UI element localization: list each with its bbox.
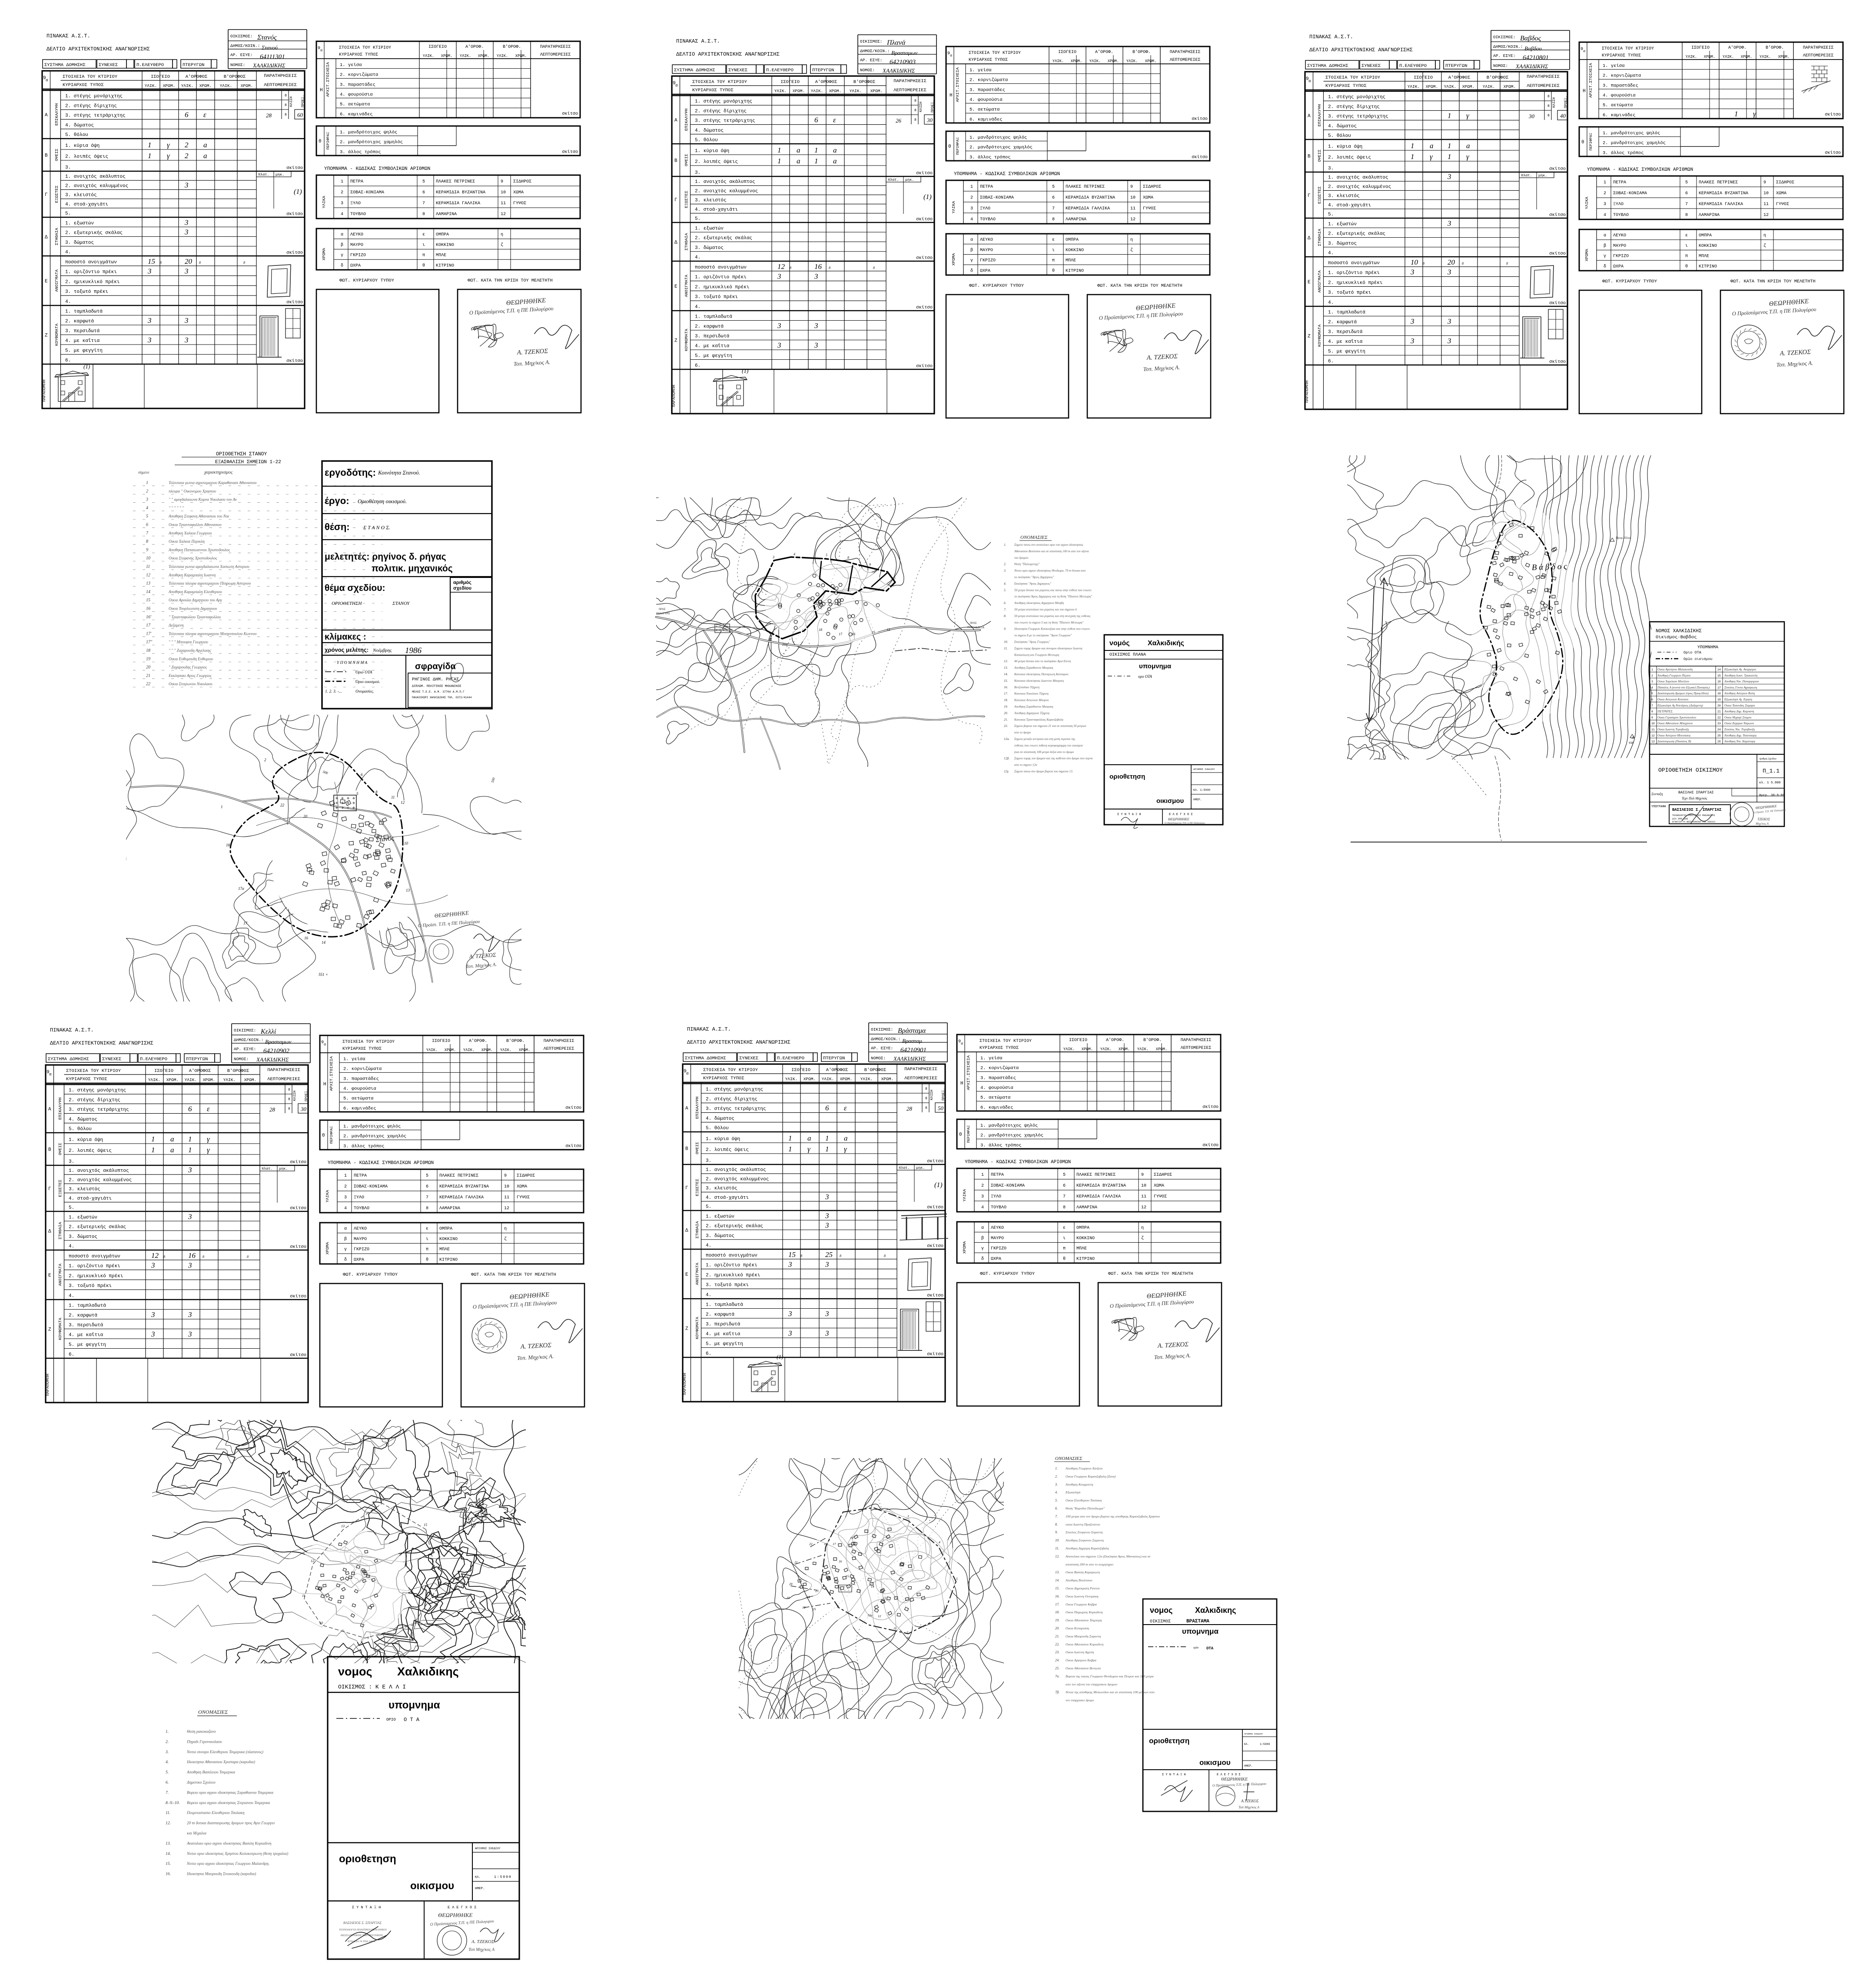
svg-text:ΚΕΡΑΜΙΔΙΑ ΒΥΖΑΝΤΙΝΑ: ΚΕΡΑΜΙΔΙΑ ΒΥΖΑΝΤΙΝΑ: [1066, 196, 1115, 200]
svg-text:Ζ: Ζ: [45, 333, 48, 338]
svg-text:5: 5: [956, 1577, 958, 1581]
svg-text:22: 22: [1717, 716, 1721, 719]
svg-text:σκίτσο: σκίτσο: [562, 111, 578, 116]
svg-text:500: 500: [490, 777, 496, 783]
svg-text:1. μανδρότοιχος ψηλός: 1. μανδρότοιχος ψηλός: [343, 1124, 401, 1129]
svg-text:Αποθηκη Νικ. Καμπουρη: Αποθηκη Νικ. Καμπουρη: [1724, 740, 1755, 743]
svg-text:5.: 5.: [166, 1771, 169, 1775]
svg-text:σκίτσο: σκίτσο: [927, 1293, 943, 1298]
svg-text:19.: 19.: [1055, 1618, 1059, 1622]
svg-text:Α'ΟΡΟΦ.: Α'ΟΡΟΦ.: [469, 1038, 487, 1044]
svg-text:5: 5: [356, 792, 359, 796]
svg-text:a: a: [1466, 142, 1470, 150]
svg-text:Κατοικια ιδιοκτησιας Ιωαννου Μ: Κατοικια ιδιοκτησιας Ιωαννου Μαυρικη: [1014, 679, 1064, 683]
svg-text:15: 15: [846, 1574, 849, 1578]
svg-text:υπομνημα: υπομνημα: [1139, 663, 1172, 670]
svg-text:Βρασταμων: Βρασταμων: [891, 50, 918, 56]
svg-text:γ: γ: [207, 1146, 210, 1154]
svg-text:ΠΕΤΡΑ: ΠΕΤΡΑ: [350, 179, 363, 184]
svg-text:θ: θ: [422, 263, 425, 268]
svg-text:7: 7: [906, 1631, 908, 1635]
svg-text:θ: θ: [319, 139, 322, 144]
svg-text:3: 3: [184, 218, 189, 226]
svg-text:Οριο ΟΤΑ: Οριο ΟΤΑ: [1683, 650, 1702, 655]
svg-text:ΠΑΡΑΤΗΡΗΣΕΙΣ: ΠΑΡΑΤΗΡΗΣΕΙΣ: [1803, 45, 1834, 50]
svg-text:ΧΡΩΜ.: ΧΡΩΜ.: [793, 89, 805, 93]
svg-text:Κουκαλιωτη και Γεωργιου Μετεωρ: Κουκαλιωτη και Γεωργιου Μετεωρη: [1014, 653, 1059, 657]
svg-text:μηκ.: μηκ.: [916, 1166, 925, 1170]
svg-text:ΚΙΤΡΙΝΟ: ΚΙΤΡΙΝΟ: [436, 263, 454, 268]
svg-text:Στανού: Στανού: [261, 44, 278, 51]
svg-text:ΥΛΙΚ.: ΥΛΙΚ.: [1760, 55, 1771, 59]
svg-text:6. καμινάδες: 6. καμινάδες: [343, 1106, 376, 1111]
svg-text:Οικια Γεωργιου Καρατζοβαλη (Ζα: Οικια Γεωργιου Καρατζοβαλη (Ζατα): [1066, 1474, 1116, 1478]
svg-text:τον επαρχιακο δρομο: τον επαρχιακο δρομο: [1066, 1698, 1094, 1702]
svg-text:ΣΤΗΘΑΙΑ: ΣΤΗΘΑΙΑ: [684, 233, 689, 250]
svg-text:13: 13: [341, 1524, 345, 1528]
svg-text:Γ: Γ: [48, 1187, 51, 1192]
svg-text:νομος: νομος: [1150, 1606, 1172, 1615]
svg-text:ΦΩΤ. ΚΥΡΙΑΡΧΟΥ ΤΥΠΟΥ: ΦΩΤ. ΚΥΡΙΑΡΧΟΥ ΤΥΠΟΥ: [1602, 279, 1657, 284]
svg-text:4: 4: [341, 212, 343, 217]
svg-text:1. κύρια όψη: 1. κύρια όψη: [1328, 144, 1362, 149]
svg-text:12γ: 12γ: [834, 602, 840, 606]
svg-text:ΥΠΟΓΡΑΦΗ: ΥΠΟΓΡΑΦΗ: [1651, 805, 1666, 809]
svg-text:25.: 25.: [1055, 1666, 1059, 1670]
svg-text:ΠΑΡΑΠΟΜΠΗ: ΠΑΡΑΠΟΜΠΗ: [1305, 381, 1309, 403]
svg-text:ΣΤΑΝΟΥ: ΣΤΑΝΟΥ: [392, 601, 410, 606]
svg-text:ΧΑΛΚΙΔΙΚΗΣ: ΧΑΛΚΙΔΙΚΗΣ: [256, 1056, 289, 1063]
svg-text:Πηγαδι Γερονικολαου: Πηγαδι Γερονικολαου: [186, 1740, 222, 1744]
svg-text:2: 2: [264, 758, 266, 762]
svg-text:ΑΡΙΟΜΟΣ ΣΧΕΔΙΟΥ: ΑΡΙΟΜΟΣ ΣΧΕΔΙΟΥ: [475, 1847, 501, 1850]
svg-text:ΠΙΝΑΚΑΣ Α.Σ.Τ.: ΠΙΝΑΚΑΣ Α.Σ.Τ.: [46, 33, 90, 39]
svg-text:Νοτιο οριο ιδιοκτησιας Χρηστου: Νοτιο οριο ιδιοκτησιας Χρηστου Κολοκοτρω…: [186, 1851, 288, 1856]
svg-text:5. με φεγγίτη: 5. με φεγγίτη: [65, 348, 103, 354]
svg-text:7: 7: [146, 531, 149, 536]
svg-text:Οικια Τουρλιωτατη Δημητριου: Οικια Τουρλιωτατη Δημητριου: [169, 607, 217, 611]
svg-text:4. με καΐτια: 4. με καΐτια: [706, 1331, 740, 1337]
svg-text:16: 16: [1717, 680, 1721, 683]
svg-text:απο τον αξονα του επαρχιακου δ: απο τον αξονα του επαρχιακου δρομου: [1066, 1682, 1117, 1686]
svg-text:ΛΕΠΤΟΜΕΡΕΙΕΣ: ΛΕΠΤΟΜΕΡΕΙΕΣ: [893, 88, 926, 93]
svg-text:Ο Προϊσταμενος Τ.Π. η ΠΕ Πολυγ: Ο Προϊσταμενος Τ.Π. η ΠΕ Πολυγυρου: [1165, 822, 1205, 825]
svg-text:3. περσιδωτά: 3. περσιδωτά: [706, 1322, 740, 1327]
svg-text:Τοπ. Μηχ/κος Α.: Τοπ. Μηχ/κος Α.: [1143, 364, 1180, 372]
svg-text:4. με καΐτια: 4. με καΐτια: [65, 338, 100, 344]
svg-text:ΦΩΤ. ΚΑΤΑ ΤΗΝ ΚΡΙΣΗ ΤΟΥ ΜΕΛΕ: ΦΩΤ. ΚΑΤΑ ΤΗΝ ΚΡΙΣΗ ΤΟΥ ΜΕΛΕΤΗΤΗ: [471, 1273, 556, 1277]
svg-text:Αποθηκη Ιωαν. Τρακατελη: Αποθηκη Ιωαν. Τρακατελη: [1724, 674, 1757, 677]
svg-text:ΘΕΩΡΗΘΗΚΕ: ΘΕΩΡΗΘΗΚΕ: [1755, 804, 1777, 810]
svg-text:σκίτσο: σκίτσο: [916, 217, 933, 222]
svg-text:1: 1: [1448, 142, 1451, 150]
svg-text:ΔΕΛΤΙΟ ΑΡΧΙΤΕΚΤΟΝΙΚΗΣ ΑΝΑΓΝΩ: ΔΕΛΤΙΟ ΑΡΧΙΤΕΚΤΟΝΙΚΗΣ ΑΝΑΓΝΩΡΙΣΗΣ: [687, 1039, 790, 1045]
svg-text:γ: γ: [1604, 254, 1606, 259]
svg-text:ΣΥΣΤΗΜΑ ΔΟΜΗΣΗΣ: ΣΥΣΤΗΜΑ ΔΟΜΗΣΗΣ: [1307, 63, 1348, 69]
svg-text:4. δώματος: 4. δώματος: [69, 1117, 97, 1122]
svg-text:ΥΛΙΚ.: ΥΛΙΚ.: [1137, 1047, 1149, 1051]
svg-text:5. αετώματα: 5. αετώματα: [1603, 103, 1633, 108]
svg-text:9: 9: [1130, 185, 1133, 189]
svg-text:Χαλκιδικής: Χαλκιδικής: [1148, 640, 1184, 647]
svg-text:Δ: Δ: [1308, 236, 1311, 241]
svg-text:2. ανοιχτός καλυμμένος: 2. ανοιχτός καλυμμένος: [69, 1177, 132, 1183]
svg-text:3. τοξωτό πρέκι: 3. τοξωτό πρέκι: [69, 1284, 112, 1289]
svg-text:5. θόλου: 5. θόλου: [695, 138, 718, 143]
svg-text:σκίτσο: σκίτσο: [286, 300, 303, 305]
svg-text:8: 8: [243, 261, 245, 265]
svg-text:19: 19: [146, 657, 150, 661]
svg-text:3: 3: [1604, 202, 1606, 207]
svg-text:σκίτσο: σκίτσο: [927, 1159, 943, 1164]
svg-text:Γ: Γ: [685, 1186, 688, 1191]
svg-text:3. κλειστός: 3. κλειστός: [65, 193, 97, 198]
svg-text:Β: Β: [1308, 154, 1311, 159]
svg-text:ποσοστό ανοιγμάτων: ποσοστό ανοιγμάτων: [69, 1254, 120, 1259]
svg-text:ΝΟΜΟΣ:: ΝΟΜΟΣ:: [860, 68, 875, 73]
svg-text:Σημειο τομης δρομου και συνορο: Σημειο τομης δρομου και συνορου ιδιοκτησ…: [1014, 647, 1082, 650]
svg-text:ΠΤΕΡΥΓΩΝ: ΠΤΕΡΥΓΩΝ: [812, 68, 834, 73]
svg-text:5: 5: [826, 553, 827, 557]
svg-text:ΠΑΡΑΠΟΜΠΗ: ΠΑΡΑΠΟΜΠΗ: [42, 380, 46, 402]
svg-text:64210903: 64210903: [890, 59, 916, 66]
svg-text:3: 3: [814, 272, 818, 281]
svg-text:ΧΩΜΑ: ΧΩΜΑ: [517, 1184, 527, 1189]
svg-text:13.: 13.: [166, 1841, 171, 1846]
svg-text:" " " " " ": " " " " " ": [169, 506, 184, 511]
svg-text:5: 5: [146, 514, 148, 519]
svg-text:ε: ε: [1685, 233, 1688, 238]
svg-text:ΙΣΟΓΕΙΟ: ΙΣΟΓΕΙΟ: [151, 74, 170, 80]
svg-text:δ: δ: [970, 268, 973, 273]
svg-text:50 μετρα δυτικα του ρεματος κα: 50 μετρα δυτικα του ρεματος και πανω στη…: [1014, 588, 1092, 592]
svg-text:Η: Η: [950, 93, 953, 98]
svg-text:Προφ. Ηλιας: Προφ. Ηλιας: [1615, 536, 1631, 540]
svg-text:Οικια Αγαπητου Μαλακουδη: Οικια Αγαπητου Μαλακουδη: [1657, 668, 1693, 671]
svg-text:ΚΛ. 1:5000: ΚΛ. 1:5000: [1193, 789, 1210, 792]
svg-text:3: 3: [777, 341, 781, 349]
svg-text:αποσταση 200 m απο το κοιμητηρ: αποσταση 200 m απο το κοιμητηριο: [1066, 1562, 1113, 1566]
svg-text:Α. ΤΖΕΚΟΣ: Α. ΤΖΕΚΟΣ: [1157, 1341, 1189, 1350]
svg-text:2. ημικυκλικό πρέκι: 2. ημικυκλικό πρέκι: [695, 285, 749, 290]
svg-text:Β'ΟΡΟΦΟΣ: Β'ΟΡΟΦΟΣ: [224, 74, 246, 80]
svg-text:1: 1: [777, 146, 781, 154]
svg-text:εργοδότης:: εργοδότης:: [325, 467, 376, 478]
svg-text:8: 8: [1685, 213, 1688, 218]
svg-text:16: 16: [304, 936, 309, 940]
svg-text:η: η: [1130, 238, 1133, 242]
svg-text:α: α: [320, 48, 322, 53]
svg-text:1: 1: [1411, 142, 1414, 150]
svg-text:1: 1: [825, 1134, 829, 1142]
svg-text:12γ.: 12γ.: [1004, 769, 1009, 773]
svg-text:ΔΕΛΤΙΟ ΑΡΧΙΤΕΚΤΟΝΙΚΗΣ ΑΝΑΓΝΩ: ΔΕΛΤΙΟ ΑΡΧΙΤΕΚΤΟΝΙΚΗΣ ΑΝΑΓΝΩΡΙΣΗΣ: [50, 1040, 153, 1046]
svg-text:2. μανδρότοιχος χαμηλός: 2. μανδρότοιχος χαμηλός: [1603, 141, 1666, 146]
svg-text:ζ: ζ: [1763, 243, 1766, 249]
svg-text:ΥΛΙΚ.: ΥΛΙΚ.: [497, 54, 508, 58]
svg-text:Α'ΟΡΟΦ.: Α'ΟΡΟΦ.: [465, 44, 484, 50]
svg-text:2. εξωτερικής σκάλας: 2. εξωτερικής σκάλας: [706, 1224, 763, 1229]
svg-text:Σ Υ Ν Τ Α Ξ Η: Σ Υ Ν Τ Α Ξ Η: [1117, 813, 1141, 816]
svg-text:Οικια Αντωνιου Κουτσου: Οικια Αντωνιου Κουτσου: [1657, 698, 1689, 701]
svg-text:ΛΕΠΤΟΜΕΡΕΙΕΣ: ΛΕΠΤΟΜΕΡΕΙΕΣ: [540, 52, 571, 57]
svg-text:17: 17: [839, 632, 843, 636]
svg-text:ΥΛΙΚ.: ΥΛΙΚ.: [426, 1048, 438, 1052]
svg-text:1. οριζόντιο πρέκι: 1. οριζόντιο πρέκι: [69, 1264, 120, 1269]
svg-text:1.: 1.: [1004, 543, 1006, 547]
svg-text:20: 20: [185, 257, 193, 265]
svg-text:ΥΛΙΚ.: ΥΛΙΚ.: [1408, 84, 1420, 89]
svg-text:6.: 6.: [1328, 359, 1334, 364]
svg-text:ΑΡΙΘΜΟΣ ΣΧΕΔΙΟΥ: ΑΡΙΘΜΟΣ ΣΧΕΔΙΟΥ: [1193, 768, 1215, 771]
svg-text:ΠΑΡΑΤΗΡΗΣΕΙΣ: ΠΑΡΑΤΗΡΗΣΕΙΣ: [1170, 50, 1201, 54]
svg-text:3. περσιδωτά: 3. περσιδωτά: [695, 334, 730, 339]
svg-text:3: 3: [970, 206, 973, 211]
svg-text:ΥΛΙΚ.: ΥΛΙΚ.: [185, 1078, 197, 1082]
svg-text:6.: 6.: [1004, 601, 1006, 605]
svg-text:ΕΞΩΣΤΕΣ: ΕΞΩΣΤΕΣ: [1317, 186, 1322, 204]
svg-text:ΙΣΟΓΕΙΟ: ΙΣΟΓΕΙΟ: [1691, 46, 1710, 50]
svg-text:3: 3: [825, 1310, 829, 1318]
svg-text:ΜΠΛΕ: ΜΠΛΕ: [1066, 259, 1076, 263]
svg-text:σκίτσο: σκίτσο: [565, 1105, 581, 1111]
svg-text:κλ. 1 5.000: κλ. 1 5.000: [1759, 781, 1781, 785]
svg-text:β: β: [344, 1237, 347, 1242]
svg-text:8: 8: [1462, 262, 1464, 265]
svg-text:3. στέγης τετράριχτης: 3. στέγης τετράριχτης: [1328, 114, 1388, 119]
svg-text:8.: 8.: [1004, 614, 1006, 618]
svg-text:ΩΧΡΑ: ΩΧΡΑ: [1613, 264, 1624, 269]
svg-text:ΥΠΟΜΝΗΜΑ: ΥΠΟΜΝΗΜΑ: [1697, 645, 1718, 650]
svg-text:ΑΡΧΙΤ.ΣΤΟΙΧΕΙΑ: ΑΡΧΙΤ.ΣΤΟΙΧΕΙΑ: [325, 62, 330, 97]
svg-text:ΥΛΙΚ.: ΥΛΙΚ.: [1100, 1047, 1112, 1051]
svg-text:ΚΕΡΑΜΙΔΙΑ ΓΑΛΛΙΚΑ: ΚΕΡΑΜΙΔΙΑ ΓΑΛΛΙΚΑ: [436, 201, 480, 206]
svg-text:17: 17: [833, 1542, 836, 1546]
svg-text:11: 11: [1763, 202, 1769, 207]
svg-text:6: 6: [361, 773, 363, 777]
svg-text:δ: δ: [1604, 264, 1606, 269]
svg-text:Εξωκκλησι: Εξωκκλησι: [1065, 1490, 1080, 1494]
svg-text:8: 8: [1423, 262, 1424, 265]
svg-text:ΕΠΙΚΑΛΥΨΗ: ΕΠΙΚΑΛΥΨΗ: [695, 1097, 700, 1119]
svg-text:12: 12: [311, 1559, 314, 1563]
svg-text:ΧΡΩΜ.: ΧΡΩΜ.: [829, 89, 842, 93]
svg-text:ΑΡ. ΕΣΥΕ:: ΑΡ. ΕΣΥΕ:: [234, 1047, 256, 1051]
svg-text:7: 7: [1063, 1194, 1066, 1199]
svg-text:1. γείσα: 1. γείσα: [980, 1056, 1002, 1061]
svg-text:ΦΩΤ. ΚΑΤΑ ΤΗΝ ΚΡΙΣΗ ΤΟΥ ΜΕΛΕ: ΦΩΤ. ΚΑΤΑ ΤΗΝ ΚΡΙΣΗ ΤΟΥ ΜΕΛΕΤΗΤΗ: [1108, 1272, 1193, 1277]
svg-text:Β: Β: [45, 153, 48, 159]
svg-text:a: a: [844, 1134, 848, 1142]
svg-text:4.: 4.: [166, 1760, 169, 1764]
svg-text:2. κορνιζώματα: 2. κορνιζώματα: [970, 78, 1008, 83]
svg-text:3. περσιδωτά: 3. περσιδωτά: [69, 1323, 103, 1328]
svg-text:3: 3: [825, 1260, 829, 1269]
svg-text:ΚΙΤΡΙΝΟ: ΚΙΤΡΙΝΟ: [1699, 264, 1717, 269]
svg-text:2. ημικυκλικό πρέκι: 2. ημικυκλικό πρέκι: [65, 279, 120, 285]
svg-text:Εκκλησακι Αγιος Γεωργιος: Εκκλησακι Αγιος Γεωργιος: [168, 674, 212, 678]
svg-text:2. λοιπές όψεις: 2. λοιπές όψεις: [706, 1148, 749, 1153]
svg-text:Ο Προϊστ. Τ.Π. ΠΕ Πολυγυρου: Ο Προϊστ. Τ.Π. ΠΕ Πολυγυρου: [1754, 809, 1786, 814]
svg-text:2. λοιπές όψεις: 2. λοιπές όψεις: [69, 1148, 112, 1154]
svg-text:σκίτσο: σκίτσο: [1549, 212, 1566, 218]
svg-text:2. καρφωτά: 2. καρφωτά: [65, 319, 94, 324]
svg-text:Α. ΤΖΕΚΟΣ: Α. ΤΖΕΚΟΣ: [1779, 348, 1811, 357]
svg-text:1. στέγης μονόριχτης: 1. στέγης μονόριχτης: [695, 99, 752, 104]
svg-text:2.: 2.: [1055, 1474, 1058, 1478]
svg-text:ΦΩΤ. ΚΑΤΑ ΤΗΝ ΚΡΙΣΗ ΤΟΥ ΜΕΛΕ: ΦΩΤ. ΚΑΤΑ ΤΗΝ ΚΡΙΣΗ ΤΟΥ ΜΕΛΕΤΗΤΗ: [468, 279, 553, 283]
svg-text:σκίτσο: σκίτσο: [286, 358, 303, 364]
svg-text:Υ Π Ο Μ Ν Η Μ Α: Υ Π Ο Μ Ν Η Μ Α: [337, 661, 367, 665]
svg-text:9: 9: [1651, 716, 1653, 719]
svg-text:ΑΝΟΙΓΜΑΤΑ: ΑΝΟΙΓΜΑΤΑ: [1317, 270, 1322, 293]
svg-text:ΣΤΟΙΧΕΙΑ ΤΟΥ ΚΤΙΡΙΟΥ: ΣΤΟΙΧΕΙΑ ΤΟΥ ΚΤΙΡΙΟΥ: [1325, 75, 1381, 80]
svg-text:ΦΩΤ. ΚΑΤΑ ΤΗΝ ΚΡΙΣΗ ΤΟΥ ΜΕΛΕ: ΦΩΤ. ΚΑΤΑ ΤΗΝ ΚΡΙΣΗ ΤΟΥ ΜΕΛΕΤΗΤΗ: [1730, 279, 1816, 284]
svg-text:Αποθηκη Παπαιωαννου Χριστοδου: Αποθηκη Παπαιωαννου Χριστοδουλος: [168, 548, 230, 552]
svg-text:2. κορνιζώματα: 2. κορνιζώματα: [343, 1067, 382, 1072]
svg-text:μηκ.: μηκ.: [276, 172, 284, 177]
svg-text:1. οριζόντιο πρέκι: 1. οριζόντιο πρέκι: [1328, 271, 1380, 276]
svg-text:3: 3: [788, 1329, 792, 1337]
svg-text:11: 11: [893, 1626, 896, 1630]
svg-text:η: η: [504, 1227, 507, 1231]
svg-text:3.: 3.: [1003, 569, 1006, 573]
svg-text:Κατοικια Τριανταφυλλιας Καρατζ: Κατοικια Τριανταφυλλιας Καρατζοβαλη: [1014, 717, 1063, 721]
svg-text:σημειο: σημειο: [138, 471, 149, 475]
svg-text:ΙΣΟΓΕΙΟ: ΙΣΟΓΕΙΟ: [154, 1068, 173, 1074]
svg-text:Τοπ. Μηχ/κος Α.: Τοπ. Μηχ/κος Α.: [513, 359, 550, 367]
svg-text:Σ Τ Α Ν Ο Σ.: Σ Τ Α Ν Ο Σ.: [363, 524, 390, 531]
svg-text:7α.: 7α.: [1055, 1674, 1059, 1678]
svg-text:α: α: [961, 1041, 963, 1046]
svg-text:ε: ε: [207, 1105, 210, 1113]
svg-text:3: 3: [1447, 268, 1451, 276]
svg-text:12: 12: [777, 262, 785, 271]
svg-text:ΠΛΑΚΕΣ ΠΕΤΡΙΝΕΣ: ΠΛΑΚΕΣ ΠΕΤΡΙΝΕΣ: [1699, 180, 1738, 185]
svg-text:3: 3: [1447, 317, 1451, 325]
svg-text:18: 18: [1717, 692, 1721, 695]
svg-text:2: 2: [1651, 674, 1653, 677]
svg-text:ΚΟΥΦΩΜΑΤΑ: ΚΟΥΦΩΜΑΤΑ: [695, 1317, 700, 1340]
svg-text:Σημειο πανω στο δρομο βορεια τ: Σημειο πανω στο δρομο βορεια του σημειου…: [1014, 770, 1073, 773]
svg-text:απο το σημειο 12α: απο το σημειο 12α: [1014, 763, 1037, 767]
svg-text:ΣΥΣΤΗΜΑ ΔΟΜΗΣΗΣ: ΣΥΣΤΗΜΑ ΔΟΜΗΣΗΣ: [685, 1056, 726, 1061]
svg-text:σκίτσο: σκίτσο: [1549, 166, 1566, 172]
svg-text:5. αετώματα: 5. αετώματα: [340, 102, 370, 107]
svg-text:Ημερ. 30-9-86: Ημερ. 30-9-86: [1759, 794, 1785, 797]
svg-text:ΚΕΡΑΜΙΔΙΑ ΒΥΖΑΝΤΙΝΑ: ΚΕΡΑΜΙΔΙΑ ΒΥΖΑΝΤΙΝΑ: [436, 190, 485, 195]
svg-text:ΦΩΤ. ΚΥΡΙΑΡΧΟΥ ΤΥΠΟΥ: ΦΩΤ. ΚΥΡΙΑΡΧΟΥ ΤΥΠΟΥ: [343, 1272, 398, 1277]
svg-text:4.: 4.: [706, 1293, 711, 1298]
svg-text:ε: ε: [844, 1104, 847, 1112]
svg-text:ΘΕΩΡΗΘΗΚΕ: ΘΕΩΡΗΘΗΚΕ: [1221, 1777, 1248, 1782]
svg-text:ΑΡ. ΕΣΥΕ:: ΑΡ. ΕΣΥΕ:: [871, 1046, 893, 1051]
svg-text:4: 4: [1651, 686, 1653, 689]
svg-text:ΣΙΔΗΡΟΣ: ΣΙΔΗΡΟΣ: [513, 179, 531, 184]
svg-text:Ε: Ε: [1308, 280, 1311, 285]
svg-text:ΘΕΩΡΗΘΗΚΕ: ΘΕΩΡΗΘΗΚΕ: [1146, 1290, 1187, 1300]
svg-text:ΧΡΩΜ.: ΧΡΩΜ.: [241, 83, 253, 88]
svg-text:64210901: 64210901: [900, 1047, 926, 1054]
svg-text:ΟΙΚΙΣΜΟΣ : Κ Ε Λ Λ Ι: ΟΙΚΙΣΜΟΣ : Κ Ε Λ Λ Ι: [338, 1684, 406, 1690]
svg-text:ΥΛΙΚ.: ΥΛΙΚ.: [220, 83, 232, 88]
svg-text:2. καρφωτά: 2. καρφωτά: [706, 1312, 734, 1317]
svg-text:4.: 4.: [69, 1293, 74, 1299]
svg-text:ΜΠΛΕ: ΜΠΛΕ: [1076, 1247, 1087, 1251]
svg-text:1. στέγης μονόριχτης: 1. στέγης μονόριχτης: [706, 1087, 763, 1092]
svg-text:ΩΧΡΑ: ΩΧΡΑ: [980, 269, 990, 273]
svg-text:Ζ: Ζ: [48, 1327, 51, 1333]
svg-text:2. καρφωτά: 2. καρφωτά: [695, 324, 724, 329]
svg-text:Ε Λ Ε Γ Χ Ο Σ: Ε Λ Ε Γ Χ Ο Σ: [1217, 1773, 1241, 1777]
svg-text:ΠΑΡΑΤΗΡΗΣΕΙΣ: ΠΑΡΑΤΗΡΗΣΕΙΣ: [904, 1067, 937, 1072]
svg-text:ΣΙΔΗΡΟΣ: ΣΙΔΗΡΟΣ: [1776, 180, 1794, 185]
svg-text:ΛΕΠΤΟΜΕΡΕΙΕΣ: ΛΕΠΤΟΜΕΡΕΙΕΣ: [267, 1077, 300, 1082]
svg-text:8: 8: [1063, 1205, 1066, 1210]
svg-text:ΣΤΟΙΧΕΙΑ ΤΟΥ ΚΤΙΡΙΟΥ: ΣΤΟΙΧΕΙΑ ΤΟΥ ΚΤΙΡΙΟΥ: [969, 51, 1021, 56]
svg-text:" " " Ζαχαρουδη Αγγελικης: " " " Ζαχαρουδη Αγγελικης: [169, 649, 211, 653]
svg-text:2. μανδρότοιχος χαμηλός: 2. μανδρότοιχος χαμηλός: [340, 140, 403, 145]
svg-text:10: 10: [1763, 191, 1769, 196]
svg-text:θ: θ: [1063, 1256, 1066, 1261]
svg-text:40: 40: [1560, 113, 1566, 119]
svg-text:8: 8: [1506, 262, 1508, 265]
svg-text:σκίτσο: σκίτσο: [927, 1352, 943, 1357]
svg-text:ΔΗΜΟΣ/ΚΟΙΝ.:: ΔΗΜΟΣ/ΚΟΙΝ.:: [860, 49, 890, 53]
svg-text:ΝΟΜΟΣ:: ΝΟΜΟΣ:: [234, 1057, 249, 1061]
svg-text:ΛΑΜΑΡΙΝΑ: ΛΑΜΑΡΙΝΑ: [1066, 217, 1086, 222]
svg-text:4. δώματος: 4. δώματος: [706, 1116, 734, 1121]
svg-text:ΧΑΛΚΙΔΙΚΗΣ: ΧΑΛΚΙΔΙΚΗΣ: [882, 67, 915, 74]
svg-text:3: 3: [315, 742, 317, 746]
svg-text:1. 2. 3. -...: 1. 2. 3. -...: [325, 690, 342, 694]
svg-text:Η: Η: [323, 1082, 326, 1087]
svg-text:(1): (1): [742, 368, 748, 374]
svg-text:11: 11: [1130, 206, 1136, 211]
svg-text:Π.ΕΛΕΥΘΕΡΟ: Π.ΕΛΕΥΘΕΡΟ: [136, 63, 164, 68]
svg-text:500: 500: [322, 769, 328, 775]
svg-text:Δ: Δ: [45, 235, 48, 240]
svg-text:ΚΛΙΣΗ: ΚΛΙΣΗ: [1552, 97, 1556, 108]
svg-text:1: 1: [825, 1145, 829, 1153]
svg-text:σκίτσο: σκίτσο: [290, 1294, 306, 1299]
svg-text:8: 8: [847, 556, 849, 560]
svg-text:3. άλλος τρόπος: 3. άλλος τρόπος: [970, 155, 1011, 160]
svg-text:Οικια Αθανασιου Βενιωτα: Οικια Αθανασιου Βενιωτα: [1066, 1666, 1101, 1670]
svg-text:1. μανδρότοιχος ψηλός: 1. μανδρότοιχος ψηλός: [340, 130, 397, 135]
svg-text:ΛΕΠΤΟΜΕΡΕΙΕΣ: ΛΕΠΤΟΜΕΡΕΙΕΣ: [1527, 83, 1560, 89]
svg-text:ορio: ορio: [1193, 1646, 1199, 1649]
svg-text:ΛΑΜΑΡΙΝΑ: ΛΑΜΑΡΙΝΑ: [436, 212, 457, 217]
svg-text:ΣΤΟΙΧΕΙΑ ΤΟΥ ΚΤΙΡΙΟΥ: ΣΤΟΙΧΕΙΑ ΤΟΥ ΚΤΙΡΙΟΥ: [66, 1068, 121, 1074]
svg-text:ΣΥΝΕΧΕΣ: ΣΥΝΕΧΕΣ: [1361, 63, 1381, 69]
svg-text:20 m δυτικα διασταυρωσης δρομω: 20 m δυτικα διασταυρωσης δρομων προς Αγι…: [187, 1821, 275, 1826]
svg-text:Α. ΤΖΕΚΟΣ: Α. ΤΖΕΚΟΣ: [1146, 353, 1178, 362]
svg-text:ΠΑΡΑΤΗΡΗΣΕΙΣ: ΠΑΡΑΤΗΡΗΣΕΙΣ: [544, 1038, 574, 1043]
svg-text:7.: 7.: [166, 1791, 169, 1795]
svg-text:1: 1: [1448, 153, 1451, 161]
svg-text:ΔΗΜΟΣ/ΚΟΙΝ.:: ΔΗΜΟΣ/ΚΟΙΝ.:: [230, 43, 260, 48]
svg-text:ΟΙΚΙΣΜΟΣ:: ΟΙΚΙΣΜΟΣ:: [230, 34, 252, 39]
svg-text:ΜΑΥΡΟ: ΜΑΥΡΟ: [1613, 244, 1626, 249]
svg-text:Αποθηκη Γεωργιου Αλεξιου: Αποθηκη Γεωργιου Αλεξιου: [1065, 1466, 1103, 1470]
svg-text:ΞΥΛΟ: ΞΥΛΟ: [980, 206, 990, 211]
svg-text:α: α: [686, 1071, 689, 1076]
svg-text:Β'ΟΡΟΦ.: Β'ΟΡΟΦ.: [1143, 1038, 1162, 1043]
svg-text:ΗΜΕΡ.: ΗΜΕΡ.: [475, 1887, 485, 1890]
svg-text:θ: θ: [1052, 268, 1055, 273]
svg-text:6: 6: [188, 1105, 192, 1113]
